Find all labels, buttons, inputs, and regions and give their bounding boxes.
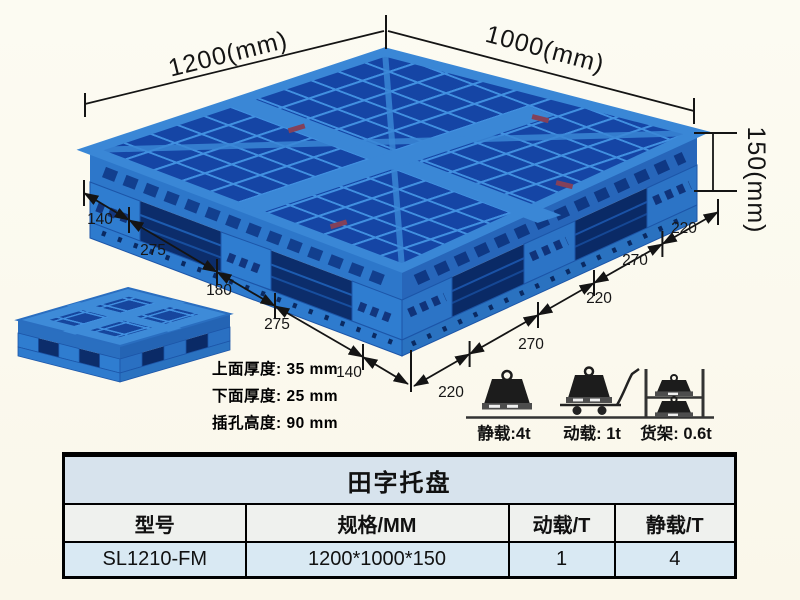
table-row: SL1210-FM 1200*1000*150 1 4 [64,542,736,578]
table-title: 田字托盘 [64,455,736,505]
cell-model: SL1210-FM [64,542,246,578]
svg-text:275: 275 [264,316,290,333]
note-bottom-thickness: 下面厚度: 25 mm [212,386,338,405]
dimension-height: 150(mm) [694,126,770,233]
spec-table: 田字托盘 型号 规格/MM 动载/T 静载/T SL1210-FM 1200*1… [62,452,737,579]
svg-text:270: 270 [622,252,648,269]
col-header-model: 型号 [64,504,246,542]
col-header-spec: 规格/MM [246,504,509,542]
svg-text:220: 220 [586,290,612,307]
svg-text:220: 220 [671,220,697,237]
load-ratings: 静载:4t 动载: 1t 货架: 0.6t [466,368,714,444]
note-slot-height: 插孔高度: 90 mm [212,413,338,432]
cell-dynamic-load: 1 [509,542,615,578]
static-load-label: 静载:4t [477,423,531,443]
cell-spec: 1200*1000*150 [246,542,509,578]
svg-text:140: 140 [336,364,362,381]
static-load-weight-icon [482,371,532,410]
col-header-static-load: 静载/T [615,504,736,542]
svg-text:270: 270 [518,336,544,353]
svg-text:220: 220 [438,384,464,401]
note-top-thickness: 上面厚度: 35 mm [212,359,338,378]
thickness-notes: 上面厚度: 35 mm 下面厚度: 25 mm 插孔高度: 90 mm [212,359,338,432]
rack-load-icon [646,369,703,418]
dynamic-load-trolley-icon [560,368,639,416]
table-header-row: 型号 规格/MM 动载/T 静载/T [64,504,736,542]
rack-load-label: 货架: 0.6t [640,423,712,443]
dim-label-150: 150(mm) [742,126,770,233]
product-sheet: 1200(mm) 1000(mm) 150(mm) 140 275 180 [0,0,800,600]
pallet-dimension-diagram: 1200(mm) 1000(mm) 150(mm) 140 275 180 [0,0,800,452]
cell-static-load: 4 [615,542,736,578]
svg-text:140: 140 [87,211,113,228]
mini-pallet-illustration [18,288,230,382]
svg-text:180: 180 [206,282,232,299]
dim-label-1200: 1200(mm) [166,26,291,83]
svg-text:275: 275 [140,242,166,259]
dim-label-1000: 1000(mm) [483,20,608,79]
col-header-dynamic-load: 动载/T [509,504,615,542]
dynamic-load-label: 动载: 1t [563,424,621,443]
